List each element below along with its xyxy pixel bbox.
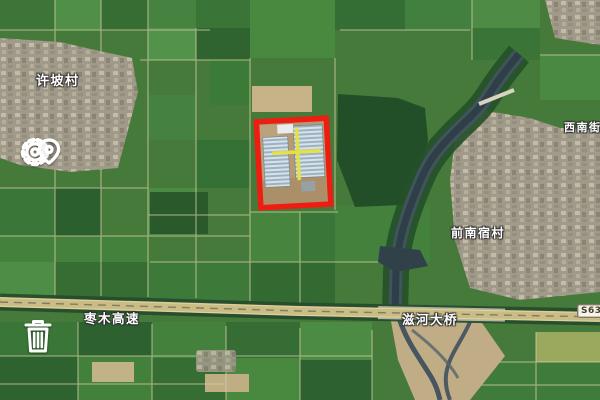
route-badge-s63: S63 — [577, 304, 600, 318]
gear-location-pin-icon — [16, 128, 68, 176]
satellite-map[interactable]: 许坡村 前南宿村 西南街 枣木高速 滋河大桥 S63 — [0, 0, 600, 400]
facility-white-building — [277, 124, 293, 134]
highlighted-facility — [256, 118, 330, 208]
village-right — [450, 108, 600, 300]
map-canvas[interactable] — [0, 0, 600, 400]
hamlet-bottom-center — [196, 350, 236, 372]
facility-sheds-left — [263, 136, 291, 187]
trash-icon — [22, 316, 54, 356]
